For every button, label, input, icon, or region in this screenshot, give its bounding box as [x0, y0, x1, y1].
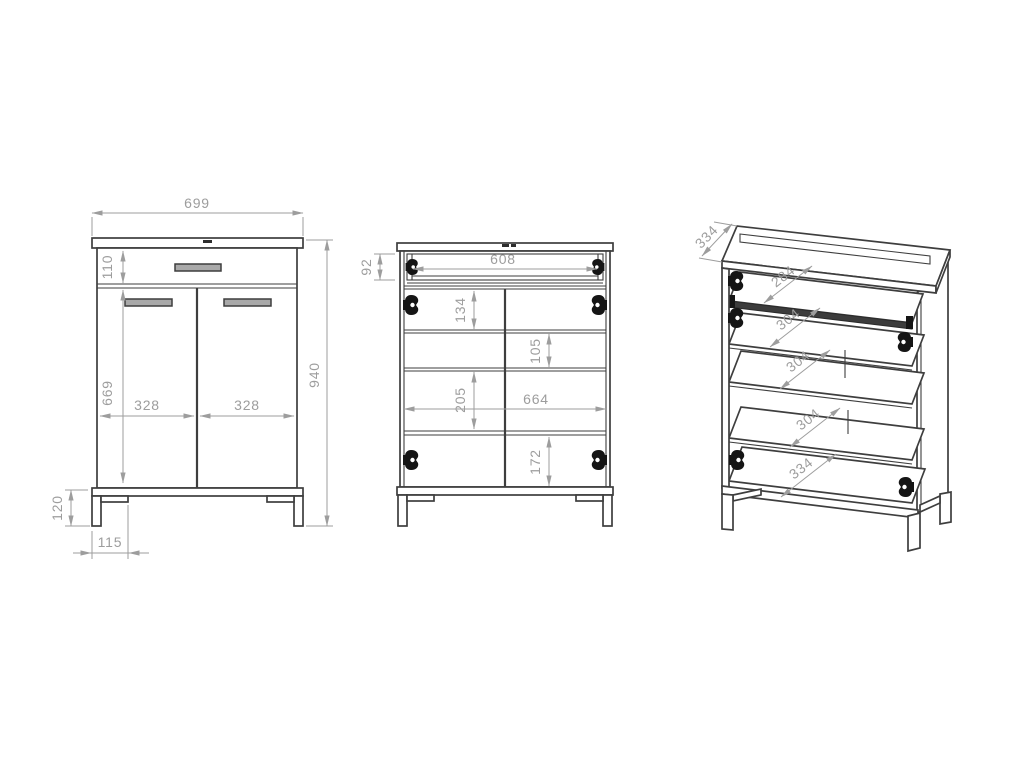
dim-label-door-height: 669: [99, 380, 115, 406]
dim-label-drawer-front-height: 110: [99, 255, 115, 280]
isometric-view: 334 284 304 304 304 334: [692, 222, 951, 551]
front-right-leg: [294, 496, 303, 526]
internal-left-leg: [398, 495, 407, 526]
dim-overall-width: 699: [92, 195, 303, 236]
front-base-rail: [92, 488, 303, 496]
iso-left-wall: [722, 268, 729, 489]
internal-base-rail: [397, 487, 613, 495]
cabinet-drawing: 699 110 669 328 328 940: [0, 0, 1013, 759]
dim-label-gap-shelf-2: 105: [527, 338, 543, 364]
dim-leg-inset: 115: [73, 505, 149, 559]
dim-label-gap-under-drawer: 134: [452, 297, 468, 323]
front-left-door-handle: [125, 299, 172, 306]
dim-label-overall-height: 940: [306, 362, 322, 388]
dim-label-cabinet-depth: 334: [692, 222, 721, 252]
dim-label-overall-width: 699: [184, 195, 210, 211]
iso-front-right-leg: [908, 513, 920, 551]
drawer-slide-icon: [906, 316, 913, 329]
front-top-fitting-mark: [203, 240, 212, 243]
internal-right-leg-bracket: [576, 495, 603, 501]
iso-front-left-leg: [722, 494, 733, 530]
dim-label-drawer-box-width: 608: [490, 251, 516, 267]
front-drawer-handle: [175, 264, 221, 271]
front-view: 699 110 669 328 328 940: [49, 195, 333, 559]
internal-top-fitting-mark-1: [502, 244, 509, 247]
front-top-panel: [92, 238, 303, 248]
front-left-leg-bracket: [101, 496, 128, 502]
dim-label-interior-width: 664: [523, 391, 549, 407]
technical-drawing-canvas: 699 110 669 328 328 940: [0, 0, 1013, 759]
hinge-icon: [728, 271, 743, 291]
dim-label-gap-bottom: 172: [527, 449, 543, 475]
dim-label-drawer-box-height: 92: [358, 258, 374, 275]
dim-drawer-box-height: 92: [358, 254, 395, 280]
front-left-leg: [92, 496, 101, 526]
dim-label-left-door-width: 328: [134, 397, 160, 413]
iso-back-right-leg: [940, 492, 951, 524]
hinge-icon: [729, 450, 744, 470]
front-right-door-handle: [224, 299, 271, 306]
hinge-icon: [728, 308, 743, 328]
internal-left-leg-bracket: [407, 495, 434, 501]
internal-view: 92 608 134 105 205 664 172: [358, 243, 613, 526]
dim-label-right-door-width: 328: [234, 397, 260, 413]
dim-label-leg-inset: 115: [98, 534, 123, 550]
dim-base-height: 120: [49, 490, 90, 526]
front-right-leg-bracket: [267, 496, 294, 502]
internal-top-fitting-mark-2: [511, 244, 516, 247]
dim-label-base-height: 120: [49, 495, 65, 521]
dim-overall-height: 940: [306, 240, 333, 526]
internal-right-leg: [603, 495, 612, 526]
